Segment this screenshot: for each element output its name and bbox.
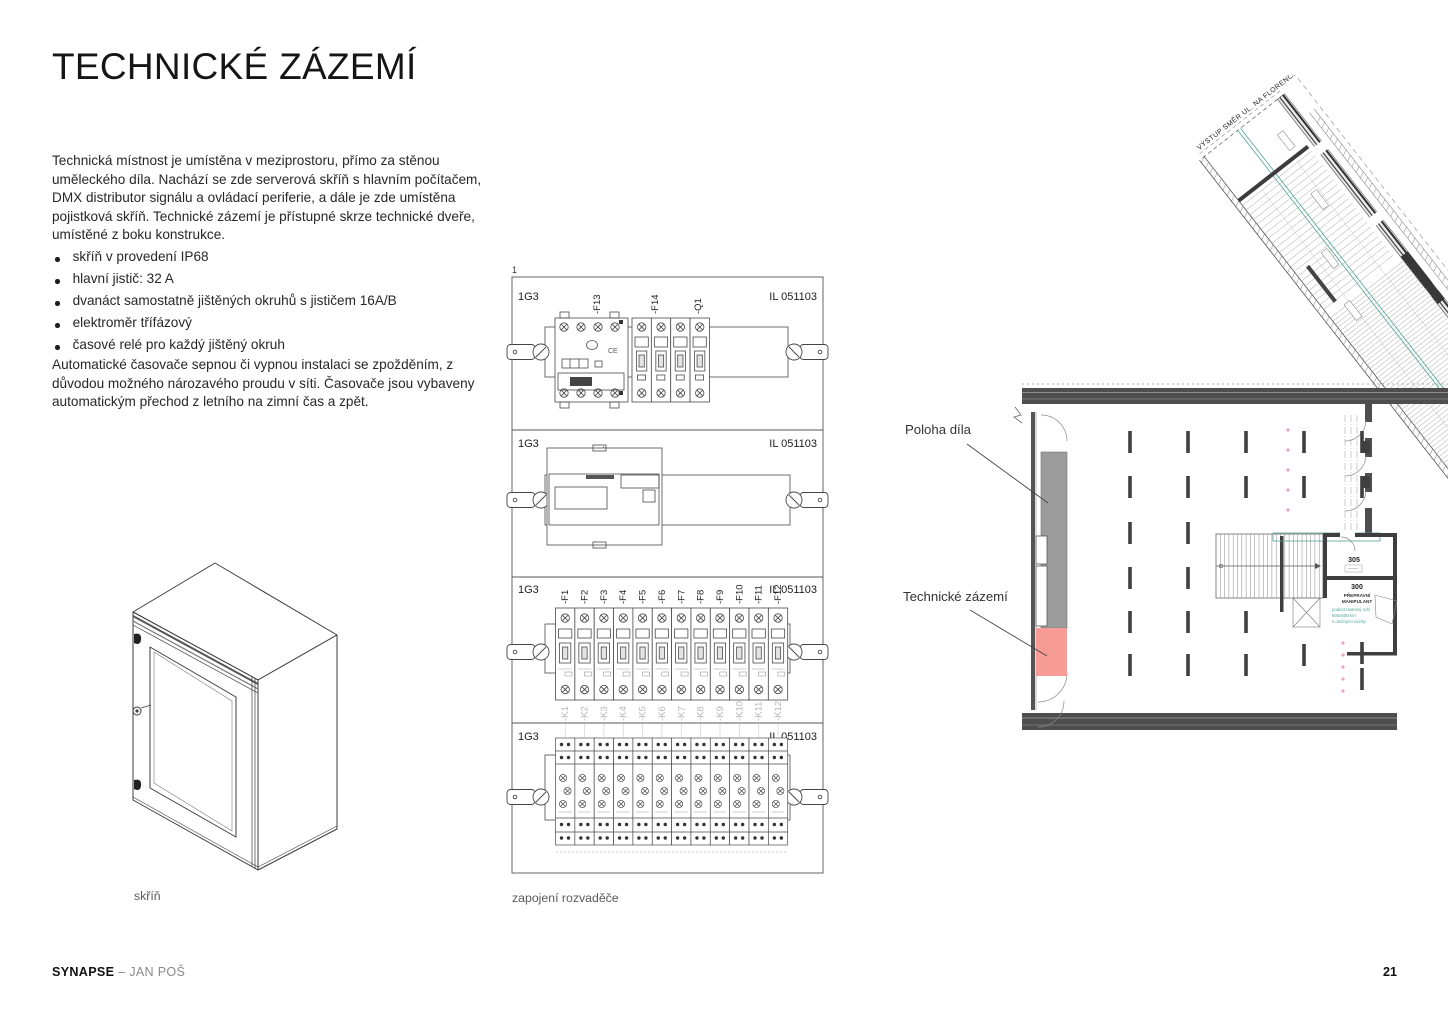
document-page: TECHNICKÉ ZÁZEMÍ Technická místnost je u… [0, 0, 1448, 1024]
floor-plan: VÝSTUP SMĚR UL. NA FLORENCI [895, 75, 1448, 775]
right-wall-doors [1345, 420, 1373, 511]
bullet-dot-icon [55, 323, 60, 328]
bullet-text: elektroměr třífázový [73, 315, 192, 330]
bullet-text: časové relé pro každý jištěný okruh [73, 337, 285, 352]
cabinet-hinge-top [134, 634, 141, 644]
component-label: -F14 [650, 294, 661, 314]
bullet-text: dvanáct samostatně jištěných okruhů s ji… [73, 293, 397, 308]
footer-author: JAN POŠ [129, 965, 185, 979]
doc-id: IL 051103 [769, 438, 817, 450]
component-label: -Q1 [693, 298, 704, 314]
component-label: -F3 [599, 590, 610, 604]
wiring-section-meter [507, 445, 828, 548]
footer-brand: SYNAPSE [52, 965, 114, 979]
construction-lines [1345, 415, 1357, 531]
corridor-stair-treads [1242, 148, 1448, 486]
ce-mark: CE [608, 348, 618, 355]
relay-label: -K2 [580, 706, 591, 721]
room-300-name-1: PŘEPRAVNÍ [1344, 591, 1371, 598]
component-label: -F13 [592, 294, 603, 314]
bullet-dot-icon [55, 345, 60, 350]
staircase [1216, 534, 1323, 612]
bullet-dot-icon [55, 257, 60, 262]
relay-label: -K11 [754, 702, 765, 721]
corridor-wing: VÝSTUP SMĚR UL. NA FLORENCI [1186, 75, 1448, 520]
component-label: -F11 [754, 585, 765, 604]
component-label: -F4 [618, 590, 629, 604]
room-300-note: podest rastrový rošt 600x600mm s otočným… [1332, 607, 1371, 624]
bullet-dot-icon [55, 301, 60, 306]
intro-paragraph: Technická místnost je umístěna v mezipro… [52, 152, 488, 245]
room-300-name-2: MANIPULANT [1342, 599, 1373, 604]
component-label: -F9 [715, 590, 726, 604]
relay-label: -K12 [773, 701, 784, 721]
relay-label: -K7 [676, 706, 687, 721]
panel-id: 1G3 [518, 584, 539, 596]
bullet-item: elektroměr třífázový [52, 315, 502, 337]
relay-label: -K9 [715, 706, 726, 721]
component-label: -F7 [676, 590, 687, 604]
page-number: 21 [1383, 965, 1397, 979]
panel-id: 1G3 [518, 731, 539, 743]
panel-id: 1G3 [518, 438, 539, 450]
cabinet-hinge-bottom [134, 780, 141, 790]
svg-text:600x600mm: 600x600mm [1332, 613, 1356, 618]
wiring-diagram: 1 1G3IL 051103 1G3IL 051103 1G3IL 051103… [500, 260, 840, 890]
component-label: -F1 [560, 590, 571, 604]
component-label: -F2 [580, 590, 591, 604]
relay-labels: -K1 -K2 -K3 -K4 -K5 -K6 -K7 -K8 -K9 -K10… [560, 701, 784, 721]
rcbo-block: CE [555, 312, 628, 408]
automation-note: Automatické časovače sepnou či vypnou in… [52, 356, 488, 412]
bullet-item: skříň v provedení IP68 [52, 249, 502, 271]
room-305-number: 305 [1348, 557, 1360, 564]
energy-meter [547, 445, 662, 548]
relay-label: -K1 [560, 706, 571, 721]
room-300-number: 300 [1351, 584, 1363, 591]
relay-label: -K5 [638, 706, 649, 721]
bullet-list: skříň v provedení IP68 hlavní jistič: 32… [52, 249, 502, 359]
relay-label: -K6 [657, 706, 668, 721]
cabinet-drawing [115, 550, 355, 895]
wiring-caption: zapojení rozvaděče [512, 891, 619, 905]
service-shaft-x-box [1293, 598, 1320, 627]
sheet-marker: 1 [512, 265, 517, 275]
footer-separator: – [118, 965, 125, 979]
cabinet-caption: skříň [134, 889, 161, 903]
svg-text:s otočnými vozíky: s otočnými vozíky [1332, 619, 1367, 624]
artwork-position-label: Poloha díla [905, 422, 971, 437]
bullet-text: hlavní jistič: 32 A [73, 271, 174, 286]
panel-id: 1G3 [518, 291, 539, 303]
component-label: -F12 [773, 584, 784, 604]
relay-label: -K4 [618, 706, 629, 721]
relay-label-ticks [565, 724, 778, 737]
technical-room-label: Technické zázemí [903, 589, 1008, 604]
relay-label: -K3 [599, 706, 610, 721]
doc-id: IL 051103 [769, 291, 817, 303]
bullet-item: dvanáct samostatně jištěných okruhů s ji… [52, 293, 502, 315]
wall-opening [1036, 536, 1047, 564]
component-label: -F6 [657, 590, 668, 604]
relay-label: -K10 [734, 701, 745, 721]
footer: SYNAPSE – JAN POŠ [52, 965, 185, 979]
wall-opening [1036, 566, 1047, 626]
bullet-text: skříň v provedení IP68 [73, 249, 209, 264]
bullet-item: hlavní jistič: 32 A [52, 271, 502, 293]
page-title: TECHNICKÉ ZÁZEMÍ [52, 46, 417, 88]
bullet-dot-icon [55, 279, 60, 284]
relay-label: -K8 [696, 706, 707, 721]
svg-text:podest rastrový rošt: podest rastrový rošt [1332, 607, 1371, 612]
component-label: -F10 [734, 584, 745, 604]
component-label: -F8 [696, 590, 707, 604]
component-label: -F5 [638, 590, 649, 604]
